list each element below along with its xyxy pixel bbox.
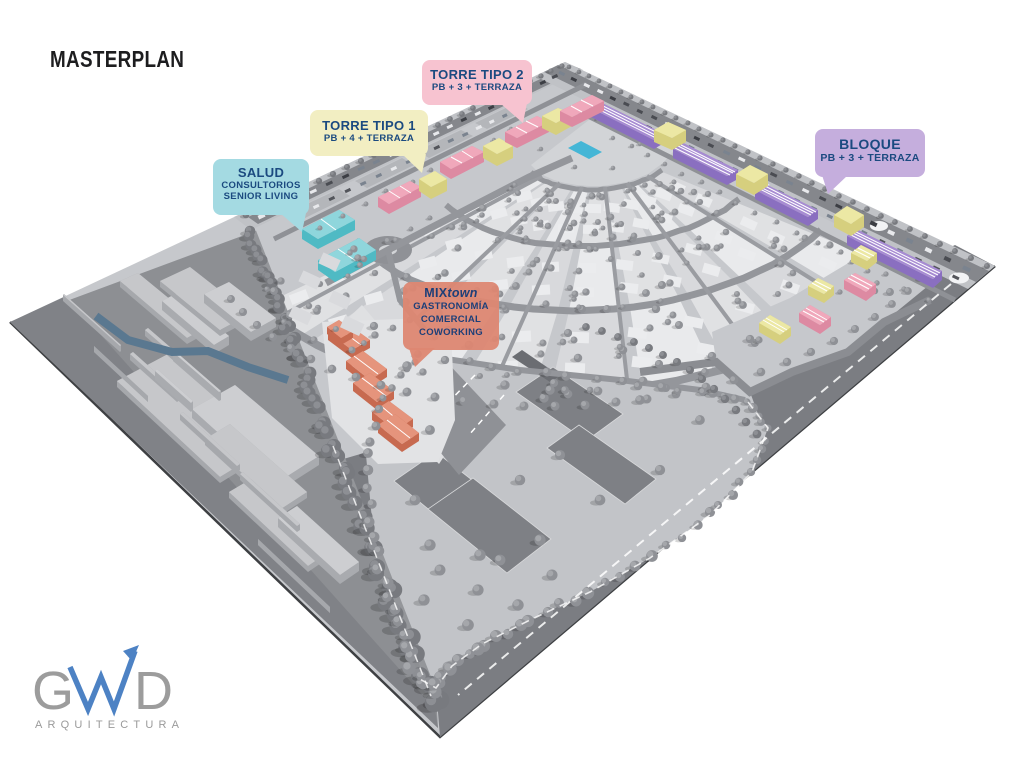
svg-text:G: G — [32, 661, 74, 721]
svg-text:ARQUITECTURA: ARQUITECTURA — [35, 719, 184, 731]
svg-text:D: D — [134, 661, 173, 721]
